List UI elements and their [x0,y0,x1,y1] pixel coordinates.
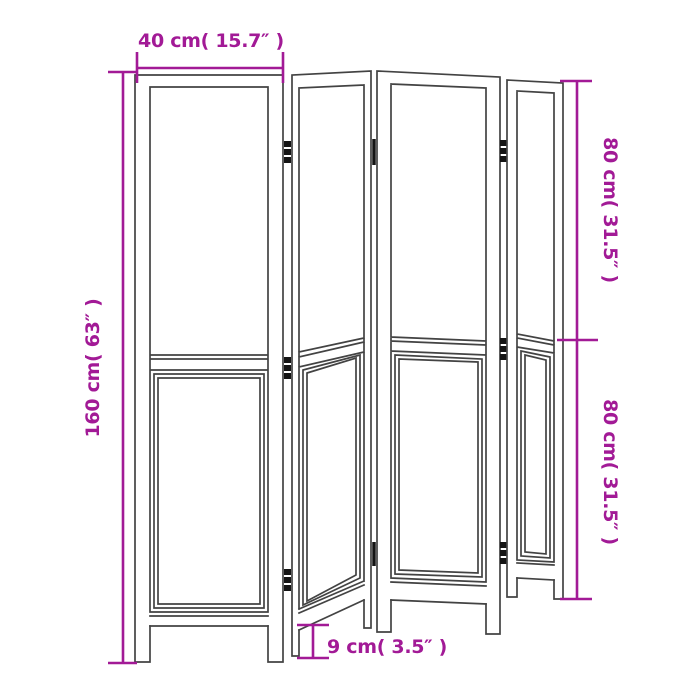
panel-1-rails [150,87,268,626]
room-divider-drawing: 40 cm( 15.7″ ) 160 cm( 63″ ) 80 cm( 31.5… [0,0,700,700]
hinge-knuckle [500,346,507,352]
hinge-knuckle [500,156,507,162]
panel-2-inset-panel [303,355,360,605]
dimension-label-height-lower-right: 80 cm( 31.5″ ) [599,399,621,545]
dimension-label-height-upper-right: 80 cm( 31.5″ ) [599,137,621,283]
hinge-knuckle [284,577,291,583]
hinge-3-4-bottom [500,542,507,564]
hinge-3-4-top [500,140,507,162]
dimension-line [137,52,283,83]
hinge-knuckle [500,550,507,556]
hinge-knuckle [284,365,291,371]
panel-4-rails [517,91,554,580]
hinge-knuckle [500,354,507,360]
hinge-1-2-bottom [284,569,291,591]
hinge-knuckle [284,141,291,147]
panel-1 [135,75,283,662]
panel-1-inset-panel [154,374,264,608]
panel-4-inset-panel [521,351,550,558]
dimension-height-right: 80 cm( 31.5″ ) 80 cm( 31.5″ ) [557,81,621,599]
hinge-1-2-top [284,141,291,163]
hinge-knuckle [284,585,291,591]
panel-2 [292,71,371,656]
hinge-knuckle [284,357,291,363]
hinge-knuckle [284,149,291,155]
hinge-knuckle [284,373,291,379]
hinge-knuckle [500,558,507,564]
panel-4 [507,80,563,599]
dimension-line [297,625,329,658]
product-diagram: 40 cm( 15.7″ ) 160 cm( 63″ ) 80 cm( 31.5… [0,0,700,700]
hinge-knuckle [500,140,507,146]
dimension-label-width-top: 40 cm( 15.7″ ) [138,30,284,52]
panel-3 [377,71,500,634]
hinge-3-4-middle [500,338,507,360]
dimension-line [108,72,137,663]
panel-2-rails [299,85,364,630]
dimension-label-height-left: 160 cm( 63″ ) [82,299,104,438]
hinge-1-2-middle [284,357,291,379]
hinge-knuckle [284,569,291,575]
hinge-knuckle [500,148,507,154]
dimension-height-left: 160 cm( 63″ ) [82,72,137,663]
hinge-knuckle [500,338,507,344]
dimension-label-ground-clearance: 9 cm( 3.5″ ) [327,636,447,658]
dimension-ground-clearance: 9 cm( 3.5″ ) [297,625,447,658]
hinge-knuckle [500,542,507,548]
panel-3-inset-panel [395,355,482,577]
hinge-knuckle [284,157,291,163]
panel-3-rails [391,84,486,604]
